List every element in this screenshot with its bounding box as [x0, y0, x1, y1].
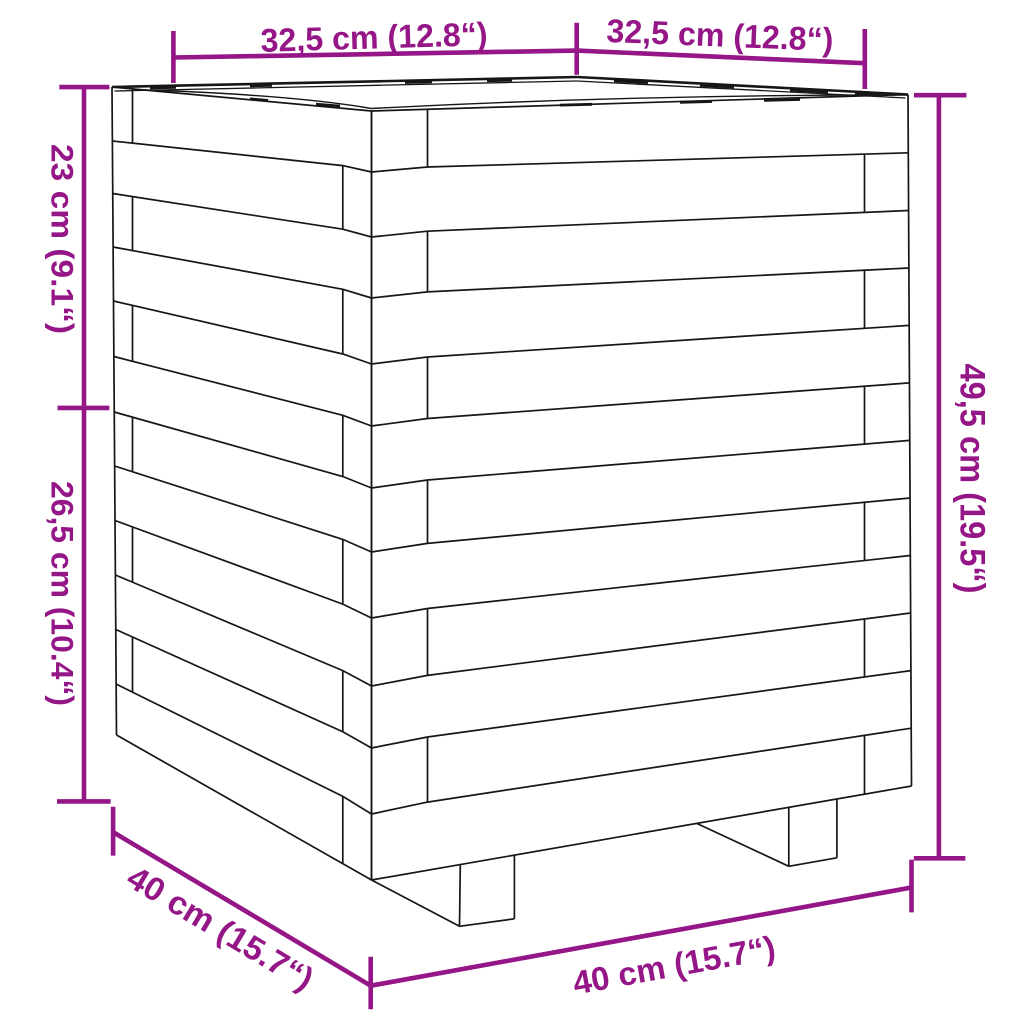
svg-text:23 cm (9.1“): 23 cm (9.1“) — [45, 144, 81, 334]
svg-text:26,5 cm (10.4“): 26,5 cm (10.4“) — [45, 481, 81, 706]
svg-text:32,5 cm (12.8“): 32,5 cm (12.8“) — [260, 15, 488, 59]
svg-text:49,5 cm (19.5“): 49,5 cm (19.5“) — [953, 364, 992, 594]
